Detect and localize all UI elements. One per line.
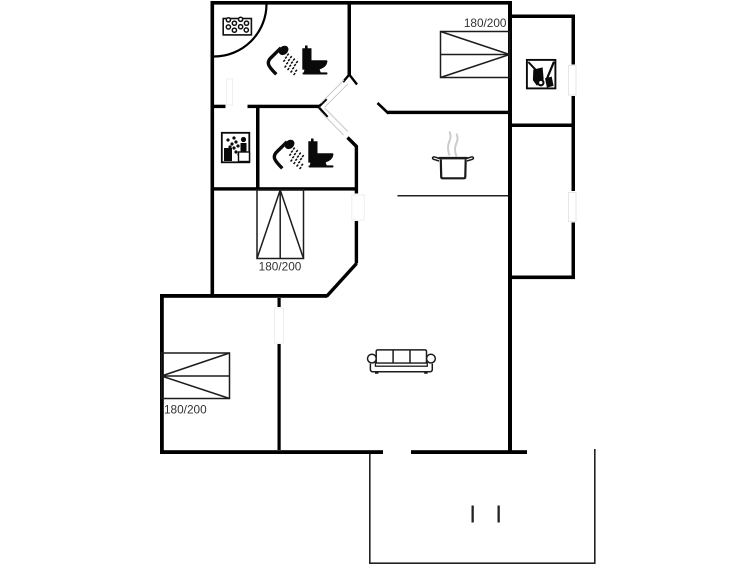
svg-text:180/200: 180/200 — [164, 403, 207, 417]
svg-text:180/200: 180/200 — [259, 260, 302, 274]
svg-text:180/200: 180/200 — [464, 16, 507, 30]
